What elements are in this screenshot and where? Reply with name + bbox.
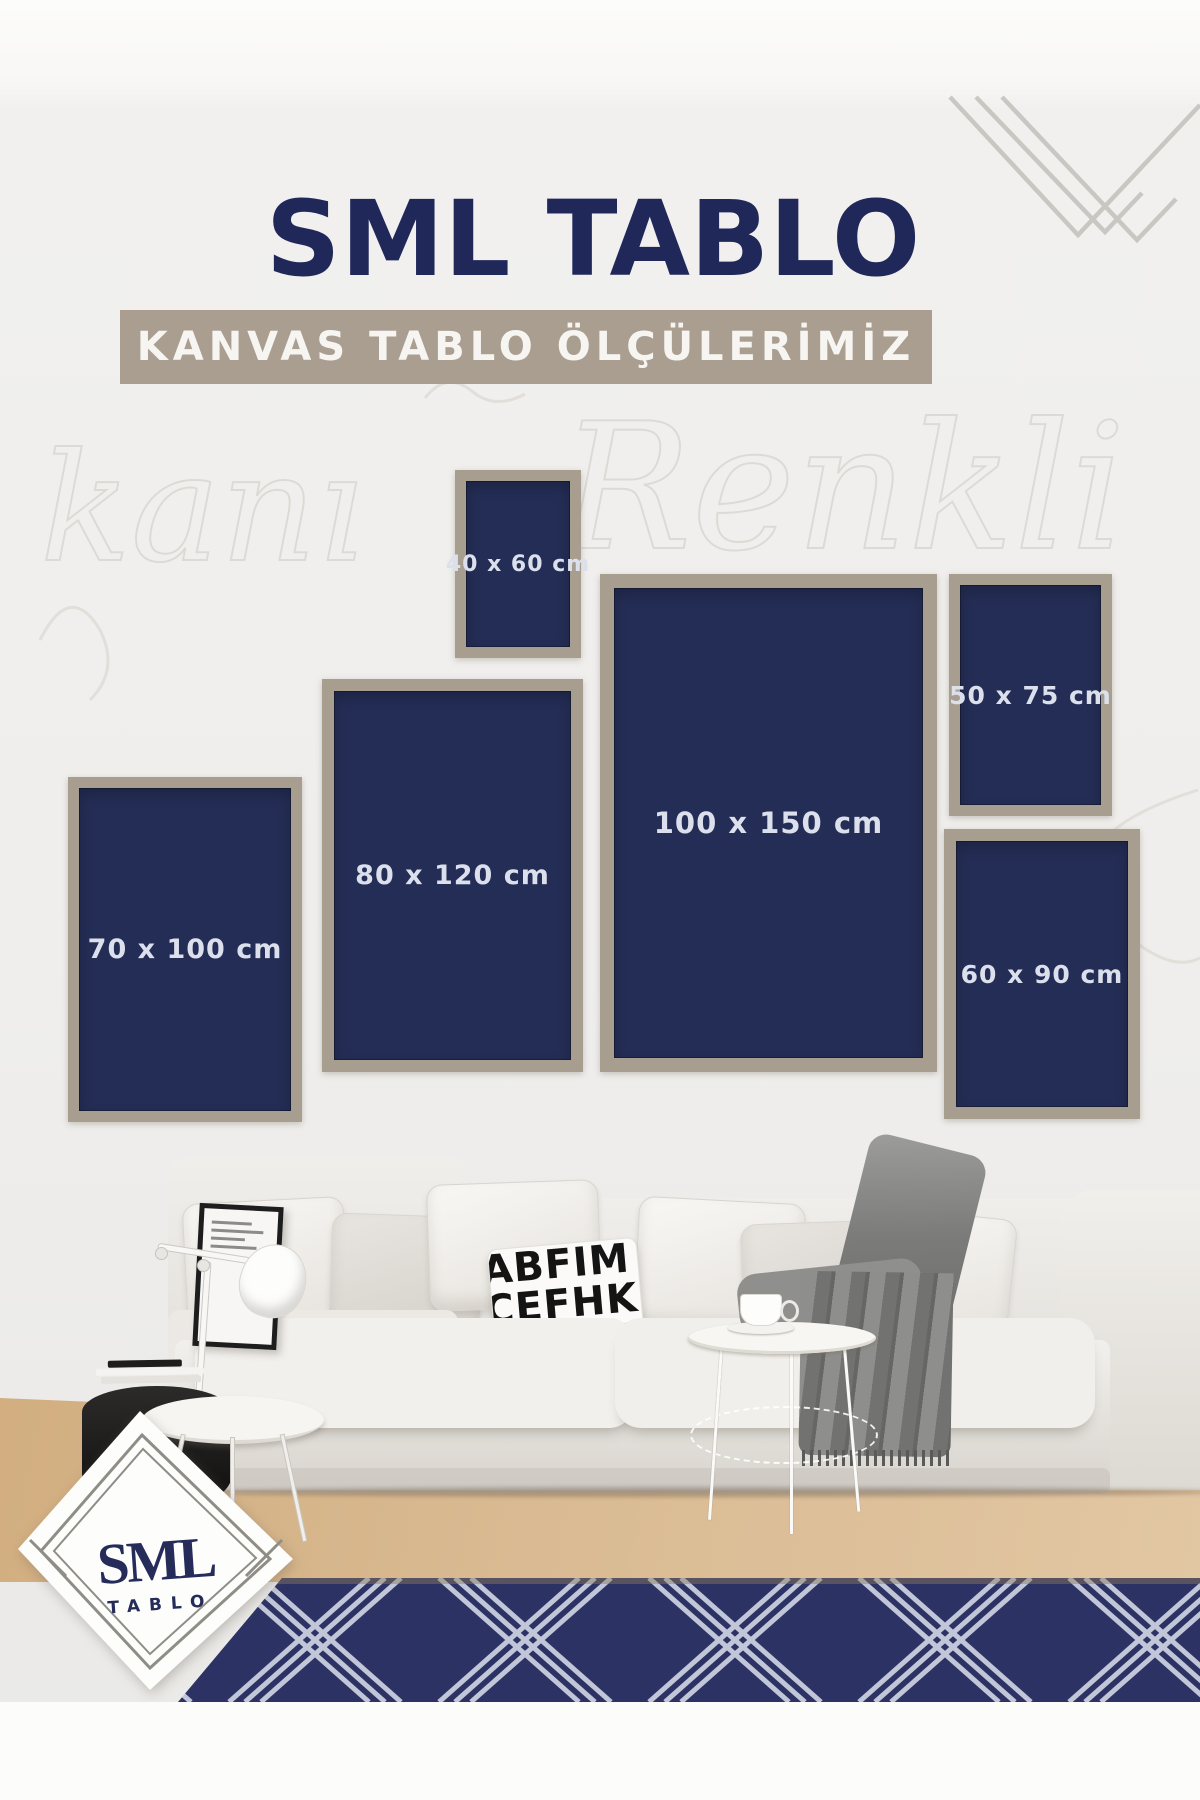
subtitle-text: KANVAS TABLO ÖLÇÜLERİMİZ: [137, 324, 916, 370]
poster-text-line: [211, 1229, 263, 1235]
lamp-joint: [198, 1260, 209, 1271]
size-label-60x90: 60 x 90 cm: [961, 960, 1124, 989]
canvas-40x60: 40 x 60 cm: [466, 481, 570, 647]
poster-text-line: [210, 1245, 256, 1250]
canvas-50x75: 50 x 75 cm: [960, 585, 1101, 805]
book: [108, 1359, 182, 1367]
size-label-80x120: 80 x 120 cm: [355, 860, 550, 891]
frame-100x150: 100 x 150 cm: [600, 574, 937, 1072]
size-label-100x150: 100 x 150 cm: [654, 806, 883, 840]
wire-table-leg: [790, 1352, 793, 1534]
book: [101, 1375, 201, 1384]
frame-60x90: 60 x 90 cm: [944, 829, 1140, 1119]
page-title: SML TABLO: [0, 186, 1186, 292]
sml-tablo-logo: SML TABLO: [10, 1408, 302, 1700]
canvas-70x100: 70 x 100 cm: [79, 788, 291, 1111]
poster-canvas-size-guide: Renkli kanı SML TABLO KANVAS TABLO ÖLÇÜL…: [0, 0, 1200, 1800]
frame-80x120: 80 x 120 cm: [322, 679, 583, 1072]
cup-handle: [780, 1300, 799, 1322]
size-label-40x60: 40 x 60 cm: [446, 552, 590, 577]
book-stack: [96, 1359, 206, 1387]
frame-40x60: 40 x 60 cm: [455, 470, 581, 658]
frame-50x75: 50 x 75 cm: [949, 574, 1112, 816]
lamp-joint: [156, 1248, 167, 1259]
canvas-60x90: 60 x 90 cm: [956, 841, 1128, 1107]
frame-70x100: 70 x 100 cm: [68, 777, 302, 1122]
subtitle-banner: KANVAS TABLO ÖLÇÜLERİMİZ: [120, 310, 932, 384]
watermark-script-renkli: Renkli: [557, 387, 1126, 590]
canvas-100x150: 100 x 150 cm: [614, 588, 923, 1058]
bottom-white-strip: [0, 1702, 1200, 1800]
sofa-floor-shadow: [185, 1487, 1200, 1497]
canvas-80x120: 80 x 120 cm: [334, 691, 571, 1060]
size-label-50x75: 50 x 75 cm: [949, 681, 1112, 710]
coffee-cup: [740, 1294, 782, 1326]
poster-text-line: [211, 1237, 245, 1242]
poster-text-line: [212, 1221, 252, 1226]
size-label-70x100: 70 x 100 cm: [88, 934, 283, 965]
watermark-script-kani: kanı: [40, 422, 365, 596]
logo-brand-text: SML: [95, 1524, 217, 1597]
